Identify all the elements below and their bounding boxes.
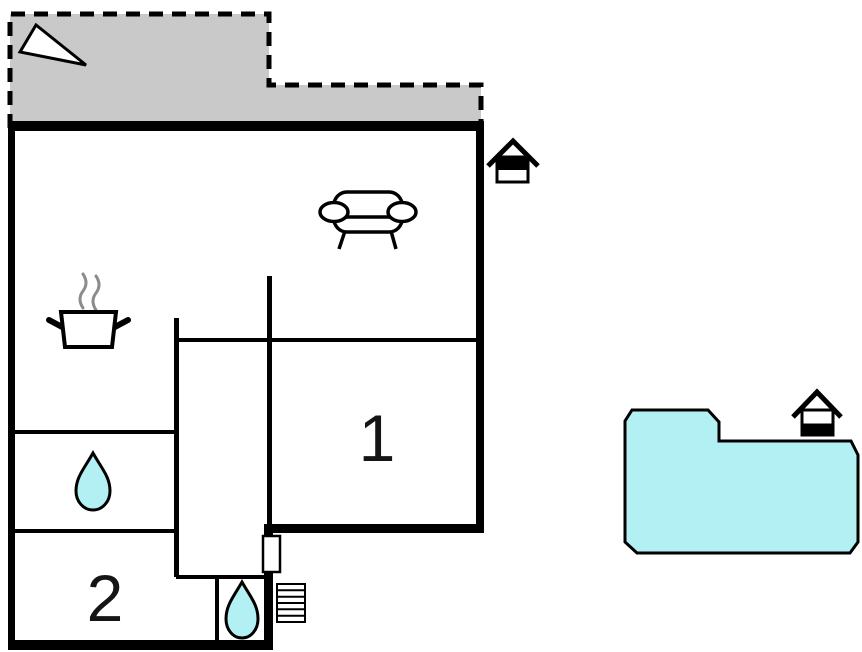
wall-bathroom1-room2 xyxy=(8,529,176,533)
steam-line-left xyxy=(80,274,86,308)
wall-bottom xyxy=(8,640,273,650)
water-drop-icon-bathroom2 xyxy=(226,582,258,638)
water-drop-icon-bathroom1 xyxy=(76,453,110,510)
exterior-walls xyxy=(8,121,484,650)
floor-plan-canvas: 1 2 xyxy=(0,0,862,652)
room-2-label: 2 xyxy=(87,561,124,635)
wall-livingroom-room1 xyxy=(175,338,479,342)
wall-kitchen-bathroom1 xyxy=(8,430,176,434)
wall-room1-bottom xyxy=(264,524,484,533)
entrance-steps-icon xyxy=(277,584,305,622)
wall-left xyxy=(8,121,15,650)
floor-plan: 1 2 xyxy=(0,0,862,652)
steam-line-right xyxy=(93,276,99,310)
wall-kitchen-hall xyxy=(174,318,179,577)
entrance-door xyxy=(263,536,280,572)
wall-right xyxy=(476,121,484,533)
terrace-fill xyxy=(10,14,481,126)
wall-hall-room1 xyxy=(267,276,272,526)
house-entrance-icon-pool xyxy=(793,392,841,435)
sofa-icon xyxy=(320,192,416,249)
room-1-label: 1 xyxy=(359,401,396,475)
terrace-area xyxy=(10,14,481,128)
house-entrance-icon-main xyxy=(488,141,538,182)
wall-top xyxy=(8,121,484,131)
cooking-pot-icon xyxy=(49,274,128,347)
wall-room2-bathroom2 xyxy=(215,575,219,642)
wall-hall-bathroom2-top xyxy=(176,575,268,579)
